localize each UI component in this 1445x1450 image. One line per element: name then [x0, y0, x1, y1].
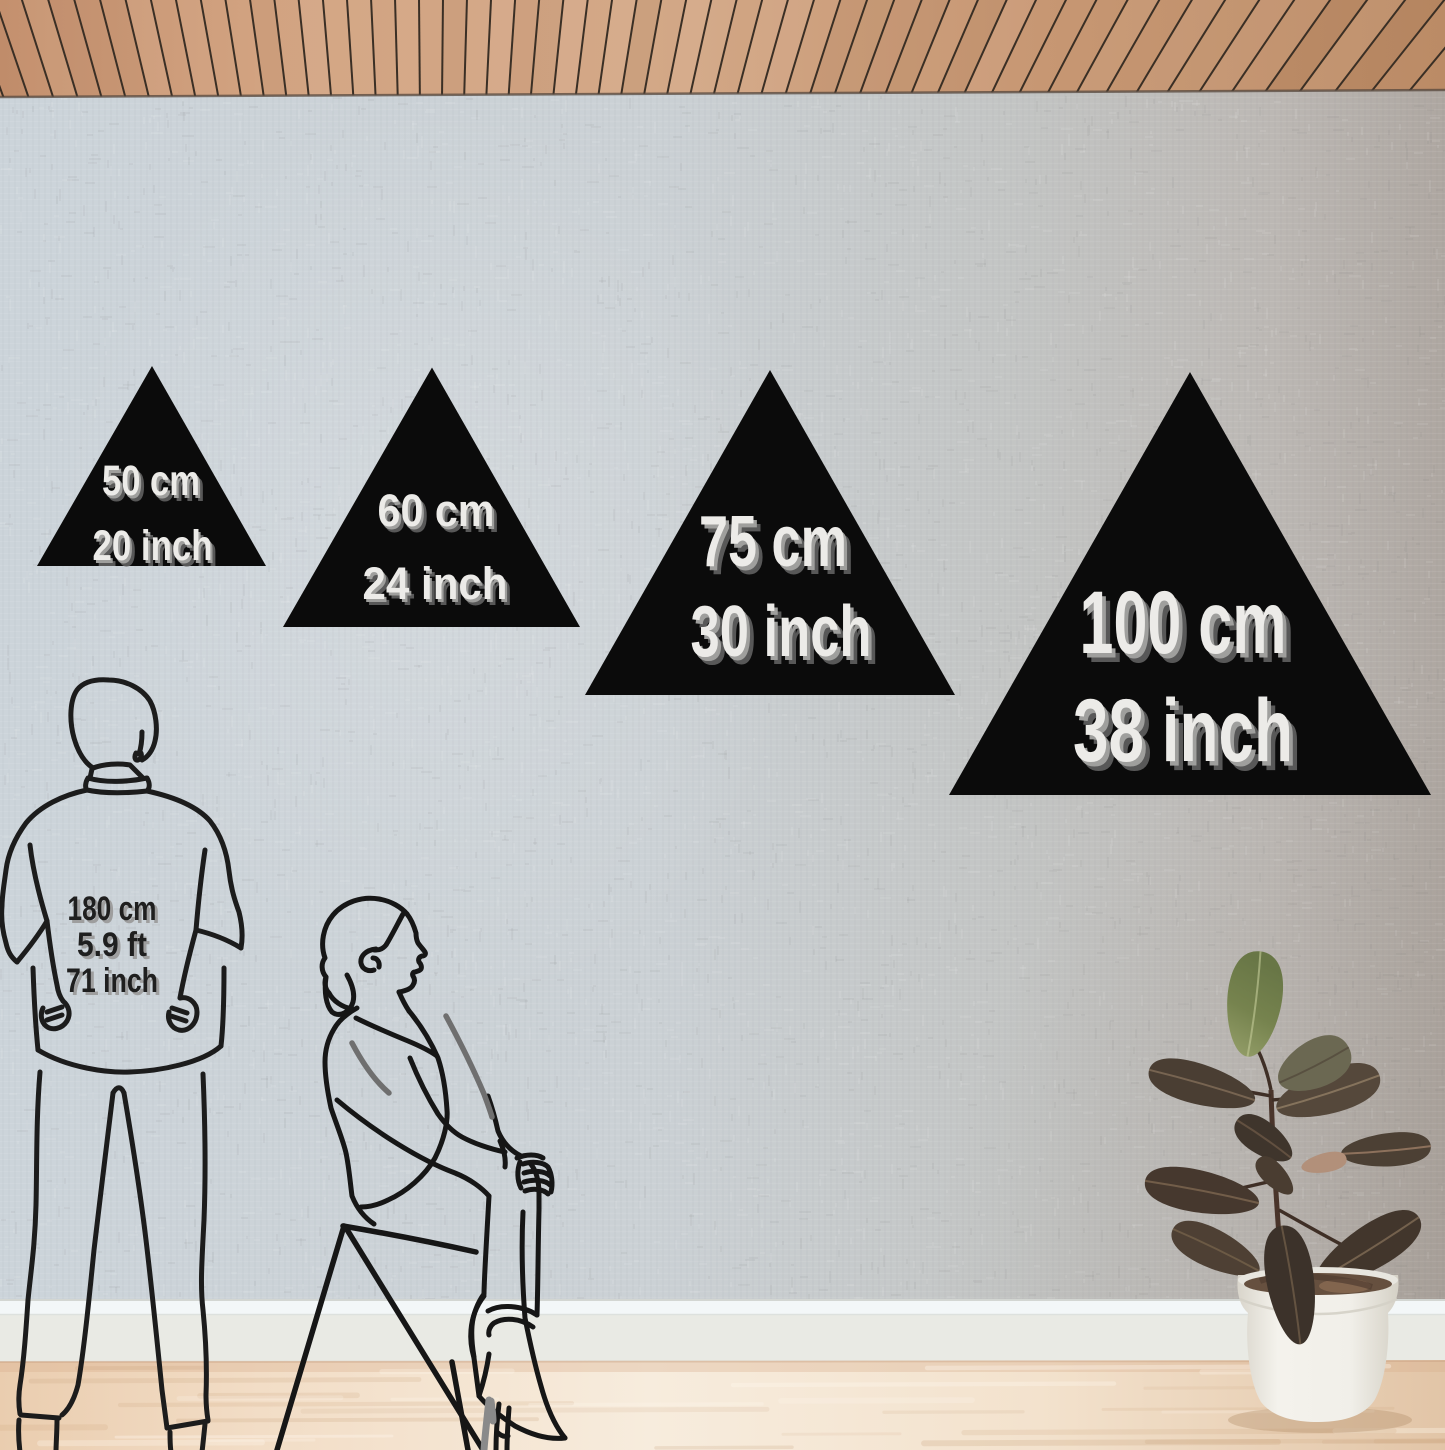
svg-text:20 inch: 20 inch: [93, 522, 213, 570]
svg-text:60 cm: 60 cm: [378, 485, 495, 536]
svg-text:71 inch: 71 inch: [66, 962, 158, 1000]
svg-text:75 cm: 75 cm: [699, 502, 847, 582]
svg-text:24 inch: 24 inch: [363, 558, 508, 609]
svg-text:180 cm: 180 cm: [68, 890, 157, 928]
svg-text:30 inch: 30 inch: [691, 592, 872, 672]
svg-text:38 inch: 38 inch: [1073, 680, 1293, 780]
svg-text:5.9 ft: 5.9 ft: [77, 926, 147, 964]
svg-text:100 cm: 100 cm: [1080, 572, 1287, 672]
svg-text:50 cm: 50 cm: [102, 457, 200, 505]
